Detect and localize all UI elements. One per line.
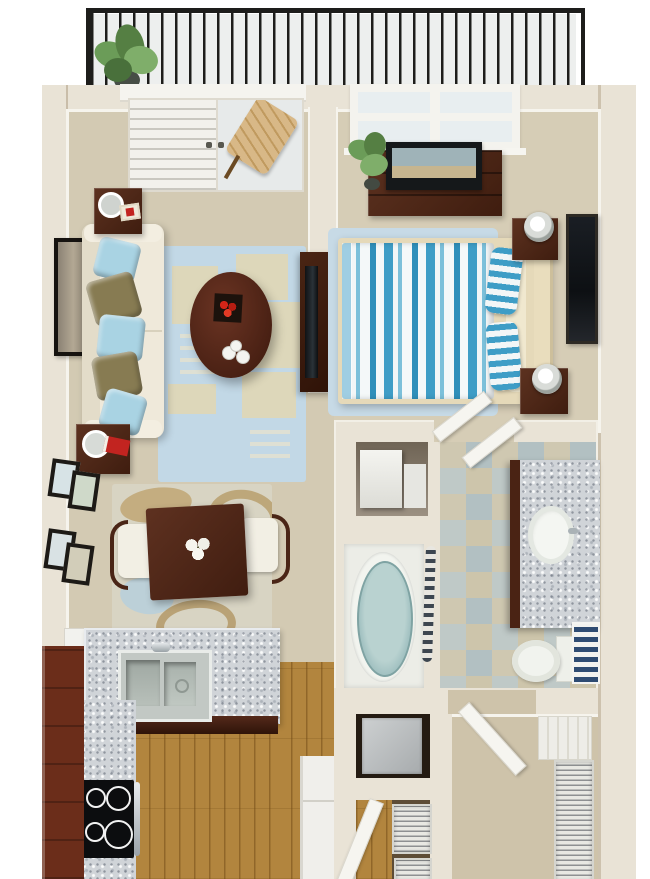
comforter-fold (342, 243, 352, 399)
notepad (119, 203, 141, 222)
table-lamp (532, 364, 562, 394)
burner (85, 822, 105, 842)
dining-chair-back (110, 520, 128, 590)
bedroom-wall-art (566, 214, 598, 344)
plant-pot (364, 178, 380, 190)
oven-handle (134, 782, 140, 856)
water-heater (362, 718, 422, 774)
cup (236, 350, 250, 364)
tub-basin (357, 561, 413, 677)
red-accent (125, 207, 134, 216)
rug-square (168, 384, 216, 414)
vanity-faucet (568, 528, 578, 534)
wire-shelf (394, 858, 432, 879)
centerpiece (213, 293, 242, 322)
striped-pillow (485, 321, 523, 392)
sink-drain (175, 679, 189, 693)
toilet-bowl (512, 640, 560, 682)
living-tv (305, 266, 318, 378)
faucet (152, 643, 170, 652)
dryer-appliance (404, 464, 426, 508)
picture-frame (61, 542, 94, 586)
french-door (120, 84, 306, 190)
glass-door-panel (216, 98, 304, 192)
burner (86, 788, 106, 808)
towel-basket (572, 622, 600, 684)
door-handle (218, 142, 224, 148)
tv-screen (392, 148, 476, 178)
patio-chair-leg (224, 155, 240, 180)
floor-plan-image (0, 0, 650, 879)
kitchen-wood-floor (134, 720, 280, 879)
closet-shelf-tower (538, 716, 592, 760)
picture-frame (67, 470, 100, 512)
coffee-table (190, 272, 272, 378)
closet-wire-shelving (554, 760, 594, 879)
dining-floor-patch (278, 629, 334, 665)
rug-dashes (250, 422, 290, 458)
fridge-seam (303, 800, 338, 802)
plant-leaves (104, 58, 132, 82)
louvered-door-panel (128, 98, 218, 192)
burner (104, 820, 133, 849)
bedroom-plant (346, 132, 394, 194)
vanity-sink (528, 506, 574, 564)
striped-comforter (342, 243, 494, 399)
table-lamp (524, 212, 554, 242)
closet-divider-wall (356, 778, 430, 800)
bathtub (350, 552, 416, 682)
cooktop (80, 780, 134, 858)
kitchen-cabinets (42, 646, 84, 879)
dining-chair-back (272, 514, 290, 584)
laundry-closet (356, 442, 428, 516)
burner (106, 786, 131, 811)
cup (230, 340, 242, 352)
door-handle (206, 142, 212, 148)
closet-column-right-wall (430, 714, 452, 879)
washer-appliance (360, 450, 402, 508)
water-heater-closet (356, 714, 430, 778)
wire-shelf (392, 804, 432, 854)
bedroom-tv (386, 142, 482, 190)
flower-centerpiece (182, 534, 214, 562)
right-wall (598, 85, 636, 879)
rug-square (242, 372, 296, 418)
